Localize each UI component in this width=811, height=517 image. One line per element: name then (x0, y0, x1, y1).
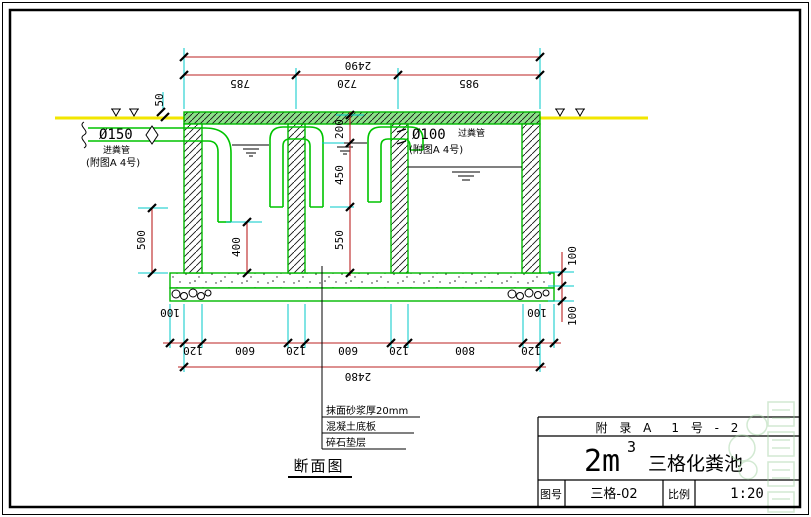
inlet-name-label: 进粪管 (103, 144, 130, 156)
top-cover-slab (184, 112, 540, 124)
crossover-ref-label: (附图A 4号) (409, 143, 463, 156)
dimension-lines (152, 57, 562, 367)
cad-drawing-page: Ø150 进粪管 (附图A 4号) Ø100 过粪管 (附图A 4号) (0, 0, 811, 517)
septic-tank-section-drawing: Ø150 进粪管 (附图A 4号) Ø100 过粪管 (附图A 4号) (0, 0, 811, 517)
figure-number-label: 图号 (540, 488, 562, 501)
pipe-labels: Ø150 进粪管 (附图A 4号) Ø100 过粪管 (附图A 4号) (86, 127, 485, 169)
title-block-volume: 2m (584, 444, 620, 479)
wall-outer-left (184, 124, 202, 273)
dim-right-100a: 100 (566, 246, 579, 266)
dim-mid-450: 450 (333, 165, 346, 185)
dim-left-400: 400 (230, 237, 243, 257)
water-levels (232, 143, 522, 180)
view-title: 断面图 (293, 457, 344, 475)
title-block-row1: 附 录 A 1 号 - 2 (596, 421, 743, 435)
dimension-ticks (148, 53, 566, 371)
dim-mid-550: 550 (333, 230, 346, 250)
concrete-base-slab (170, 273, 554, 288)
note-plaster: 抹面砂浆厚20mm (326, 404, 408, 417)
title-block-name: 三格化粪池 (648, 453, 743, 475)
inlet-ref-label: (附图A 4号) (86, 156, 140, 169)
dim-top-seg1: 785 (230, 77, 250, 90)
dim-top-seg2: 720 (337, 77, 357, 90)
dim-right-100b: 100 (566, 306, 579, 326)
water-level-chamber2 (324, 143, 367, 154)
title-block: 附 录 A 1 号 - 2 2m 3 三格化粪池 图号 三格-02 比例 1:2… (538, 417, 800, 507)
water-level-chamber1 (232, 145, 269, 156)
dim-bottom-overhang-left: 100 (160, 306, 180, 319)
inlet-diameter-label: Ø150 (99, 127, 133, 143)
dim-mid-200: 200 (333, 119, 346, 139)
dim-top-offset: 50 (153, 93, 166, 106)
dim-bottom-6: 800 (455, 344, 475, 357)
extension-lines (138, 48, 574, 372)
dim-top-total: 2490 (345, 59, 372, 72)
title-block-volume-sup: 3 (627, 438, 636, 456)
dim-bottom-4: 600 (338, 344, 358, 357)
dim-bottom-total: 2480 (345, 370, 372, 383)
scale-label: 比例 (668, 487, 690, 501)
dim-bottom-1: 120 (183, 344, 203, 357)
dim-bottom-2: 600 (235, 344, 255, 357)
gravel-cushion-layer (170, 288, 554, 301)
wall-partition-2 (391, 124, 408, 273)
note-concrete-slab: 混凝土底板 (326, 420, 376, 433)
wall-partition-1 (288, 124, 305, 273)
dim-bottom-7: 120 (521, 344, 541, 357)
dim-left-500: 500 (135, 230, 148, 250)
dim-bottom-overhang-right: 100 (527, 306, 547, 319)
bottom-slab (170, 273, 554, 301)
dim-top-seg3: 985 (459, 77, 479, 90)
note-gravel-cushion: 碎石垫层 (326, 436, 366, 449)
figure-number-value: 三格-02 (590, 486, 637, 502)
wall-outer-right (522, 124, 540, 273)
crossover-name-label: 过粪管 (458, 127, 485, 139)
pipe-break-symbol (82, 122, 86, 148)
crossover-diameter-label: Ø100 (412, 127, 446, 143)
dim-bottom-3: 120 (286, 344, 306, 357)
water-level-chamber3 (408, 167, 522, 180)
view-title-group: 断面图 (288, 457, 352, 477)
dim-bottom-5: 120 (389, 344, 409, 357)
scale-value: 1:20 (730, 486, 764, 502)
